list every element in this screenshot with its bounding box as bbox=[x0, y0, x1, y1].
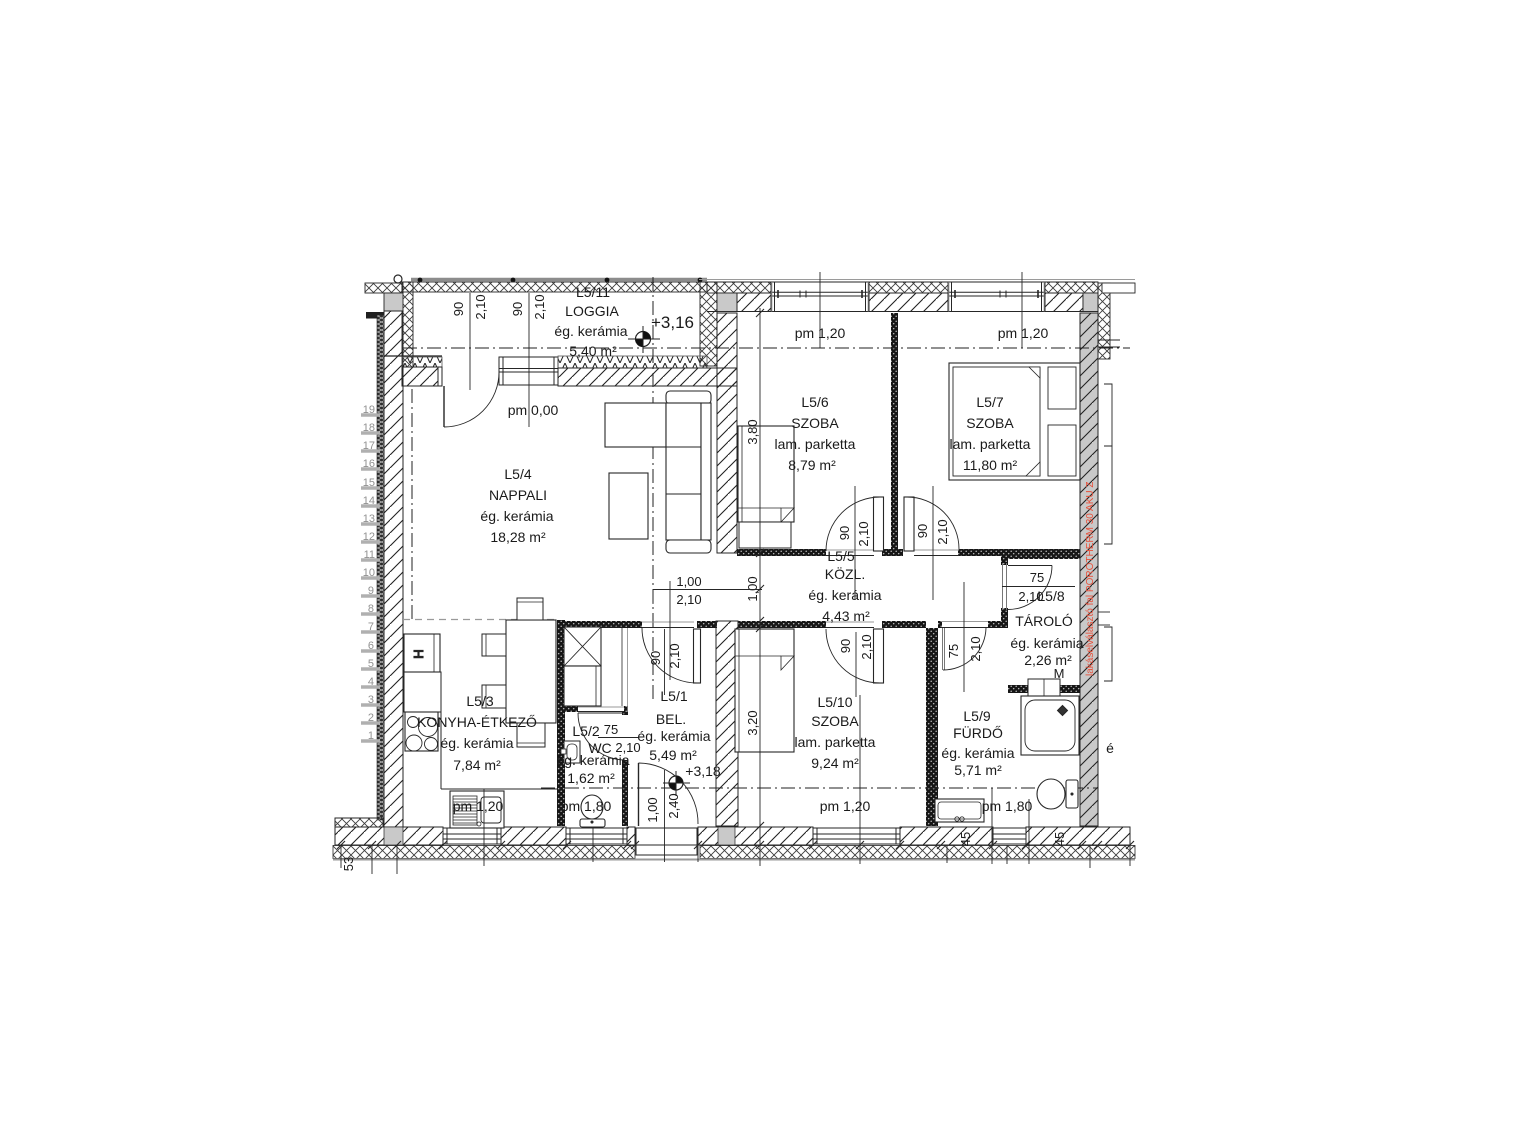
svg-text:L5/2: L5/2 bbox=[572, 723, 599, 739]
svg-text:1,00: 1,00 bbox=[676, 574, 701, 589]
svg-text:9,24 m²: 9,24 m² bbox=[811, 755, 859, 771]
svg-text:12: 12 bbox=[363, 531, 375, 543]
svg-text:8: 8 bbox=[368, 603, 374, 615]
svg-text:2: 2 bbox=[368, 712, 374, 724]
svg-text:SZOBA: SZOBA bbox=[791, 415, 839, 431]
svg-text:10: 10 bbox=[363, 567, 375, 579]
svg-text:L5/7: L5/7 bbox=[976, 394, 1003, 410]
svg-text:FÜRDŐ: FÜRDŐ bbox=[953, 724, 1003, 741]
svg-text:75: 75 bbox=[946, 644, 961, 658]
svg-text:ég. kerámia: ég. kerámia bbox=[440, 735, 513, 751]
svg-text:2,10: 2,10 bbox=[667, 643, 682, 668]
svg-text:90: 90 bbox=[451, 302, 466, 316]
svg-text:2,10: 2,10 bbox=[856, 521, 871, 546]
svg-text:3: 3 bbox=[368, 694, 374, 706]
svg-text:pm 0,00: pm 0,00 bbox=[508, 402, 559, 418]
svg-text:18,28 m²: 18,28 m² bbox=[490, 529, 546, 545]
svg-text:13: 13 bbox=[363, 513, 375, 525]
svg-text:11: 11 bbox=[364, 549, 375, 561]
svg-text:45: 45 bbox=[1052, 832, 1067, 846]
svg-text:pm 1,20: pm 1,20 bbox=[453, 798, 504, 814]
svg-text:2,10: 2,10 bbox=[1018, 589, 1043, 604]
svg-text:+3,18: +3,18 bbox=[685, 763, 721, 779]
svg-text:2,10: 2,10 bbox=[473, 294, 488, 319]
svg-text:2,10: 2,10 bbox=[968, 636, 983, 661]
svg-text:lam. parketta: lam. parketta bbox=[775, 436, 856, 452]
svg-text:2,40: 2,40 bbox=[666, 793, 681, 818]
svg-text:90: 90 bbox=[915, 524, 930, 538]
svg-text:90: 90 bbox=[837, 526, 852, 540]
svg-text:11,80 m²: 11,80 m² bbox=[963, 457, 1018, 473]
svg-text:L5/10: L5/10 bbox=[817, 694, 852, 710]
svg-text:4: 4 bbox=[368, 676, 374, 688]
svg-text:ég. kerámia: ég. kerámia bbox=[480, 508, 553, 524]
svg-text:2,10: 2,10 bbox=[532, 294, 547, 319]
svg-text:5: 5 bbox=[368, 658, 374, 670]
svg-text:lam. parketta: lam. parketta bbox=[795, 734, 876, 750]
svg-text:1,00: 1,00 bbox=[745, 576, 760, 601]
svg-text:KONYHA-ÉTKEZŐ: KONYHA-ÉTKEZŐ bbox=[417, 714, 537, 730]
svg-text:L5/9: L5/9 bbox=[963, 708, 990, 724]
svg-text:lakáselválasztó fal POROTHERM: lakáselválasztó fal POROTHERM 30 AKU Z bbox=[1085, 481, 1096, 676]
svg-text:lam. parketta: lam. parketta bbox=[950, 436, 1031, 452]
svg-text:SZOBA: SZOBA bbox=[811, 713, 859, 729]
svg-text:1,62 m²: 1,62 m² bbox=[567, 770, 615, 786]
svg-text:L5/6: L5/6 bbox=[801, 394, 828, 410]
svg-text:5,71 m²: 5,71 m² bbox=[954, 762, 1002, 778]
svg-text:8,79 m²: 8,79 m² bbox=[788, 457, 836, 473]
svg-text:ég. kerámia: ég. kerámia bbox=[554, 323, 627, 339]
svg-text:75: 75 bbox=[1030, 570, 1044, 585]
svg-text:2,26 m²: 2,26 m² bbox=[1024, 652, 1072, 668]
svg-text:75: 75 bbox=[604, 722, 618, 737]
svg-text:53: 53 bbox=[341, 857, 356, 871]
svg-text:7: 7 bbox=[368, 621, 374, 633]
svg-text:1,00: 1,00 bbox=[645, 797, 660, 822]
svg-text:BEL.: BEL. bbox=[656, 711, 686, 727]
svg-text:90: 90 bbox=[648, 651, 663, 665]
svg-text:7,84 m²: 7,84 m² bbox=[453, 757, 501, 773]
svg-text:M: M bbox=[1054, 666, 1065, 681]
svg-text:L5/4: L5/4 bbox=[504, 466, 531, 482]
svg-text:2,10: 2,10 bbox=[615, 740, 640, 755]
svg-text:NAPPALI: NAPPALI bbox=[489, 487, 547, 503]
svg-text:ég. kerámia: ég. kerámia bbox=[941, 745, 1014, 761]
svg-text:19: 19 bbox=[363, 404, 375, 416]
svg-text:pm 1,20: pm 1,20 bbox=[820, 798, 871, 814]
svg-text:SZOBA: SZOBA bbox=[966, 415, 1014, 431]
svg-text:4,43 m²: 4,43 m² bbox=[822, 608, 870, 624]
svg-text:2,10: 2,10 bbox=[859, 634, 874, 659]
svg-text:KÖZL.: KÖZL. bbox=[825, 565, 865, 582]
svg-text:90: 90 bbox=[510, 302, 525, 316]
svg-text:15: 15 bbox=[363, 477, 375, 489]
svg-text:L5/11: L5/11 bbox=[576, 284, 610, 300]
svg-text:6: 6 bbox=[368, 640, 374, 652]
svg-text:ég. kerámia: ég. kerámia bbox=[808, 587, 881, 603]
svg-text:pm 1,80: pm 1,80 bbox=[561, 798, 612, 814]
svg-text:3,20: 3,20 bbox=[745, 710, 760, 735]
svg-text:2,10: 2,10 bbox=[676, 592, 701, 607]
svg-text:45: 45 bbox=[958, 832, 973, 846]
svg-text:2,10: 2,10 bbox=[935, 519, 950, 544]
svg-text:1: 1 bbox=[368, 730, 374, 742]
svg-text:90: 90 bbox=[838, 639, 853, 653]
svg-text:16: 16 bbox=[363, 458, 375, 470]
svg-text:5,49 m²: 5,49 m² bbox=[649, 747, 697, 763]
svg-text:L5/3: L5/3 bbox=[466, 693, 493, 709]
svg-text:TÁROLÓ: TÁROLÓ bbox=[1015, 613, 1073, 629]
svg-text:5,40 m²: 5,40 m² bbox=[569, 343, 617, 359]
svg-text:3,80: 3,80 bbox=[745, 419, 760, 444]
svg-text:18: 18 bbox=[363, 422, 375, 434]
svg-text:pm 1,80: pm 1,80 bbox=[982, 798, 1033, 814]
svg-text:9: 9 bbox=[368, 585, 374, 597]
svg-text:H: H bbox=[411, 649, 426, 658]
svg-text:é: é bbox=[1106, 740, 1114, 756]
svg-text:17: 17 bbox=[363, 440, 375, 452]
svg-text:ég. kerámia: ég. kerámia bbox=[637, 728, 710, 744]
svg-text:14: 14 bbox=[363, 495, 375, 507]
svg-text:+3,16: +3,16 bbox=[651, 313, 694, 332]
svg-text:ég. kerámia: ég. kerámia bbox=[1010, 635, 1083, 651]
svg-text:L5/5: L5/5 bbox=[827, 548, 854, 564]
svg-text:pm 1,20: pm 1,20 bbox=[998, 325, 1049, 341]
svg-text:LOGGIA: LOGGIA bbox=[565, 303, 619, 319]
